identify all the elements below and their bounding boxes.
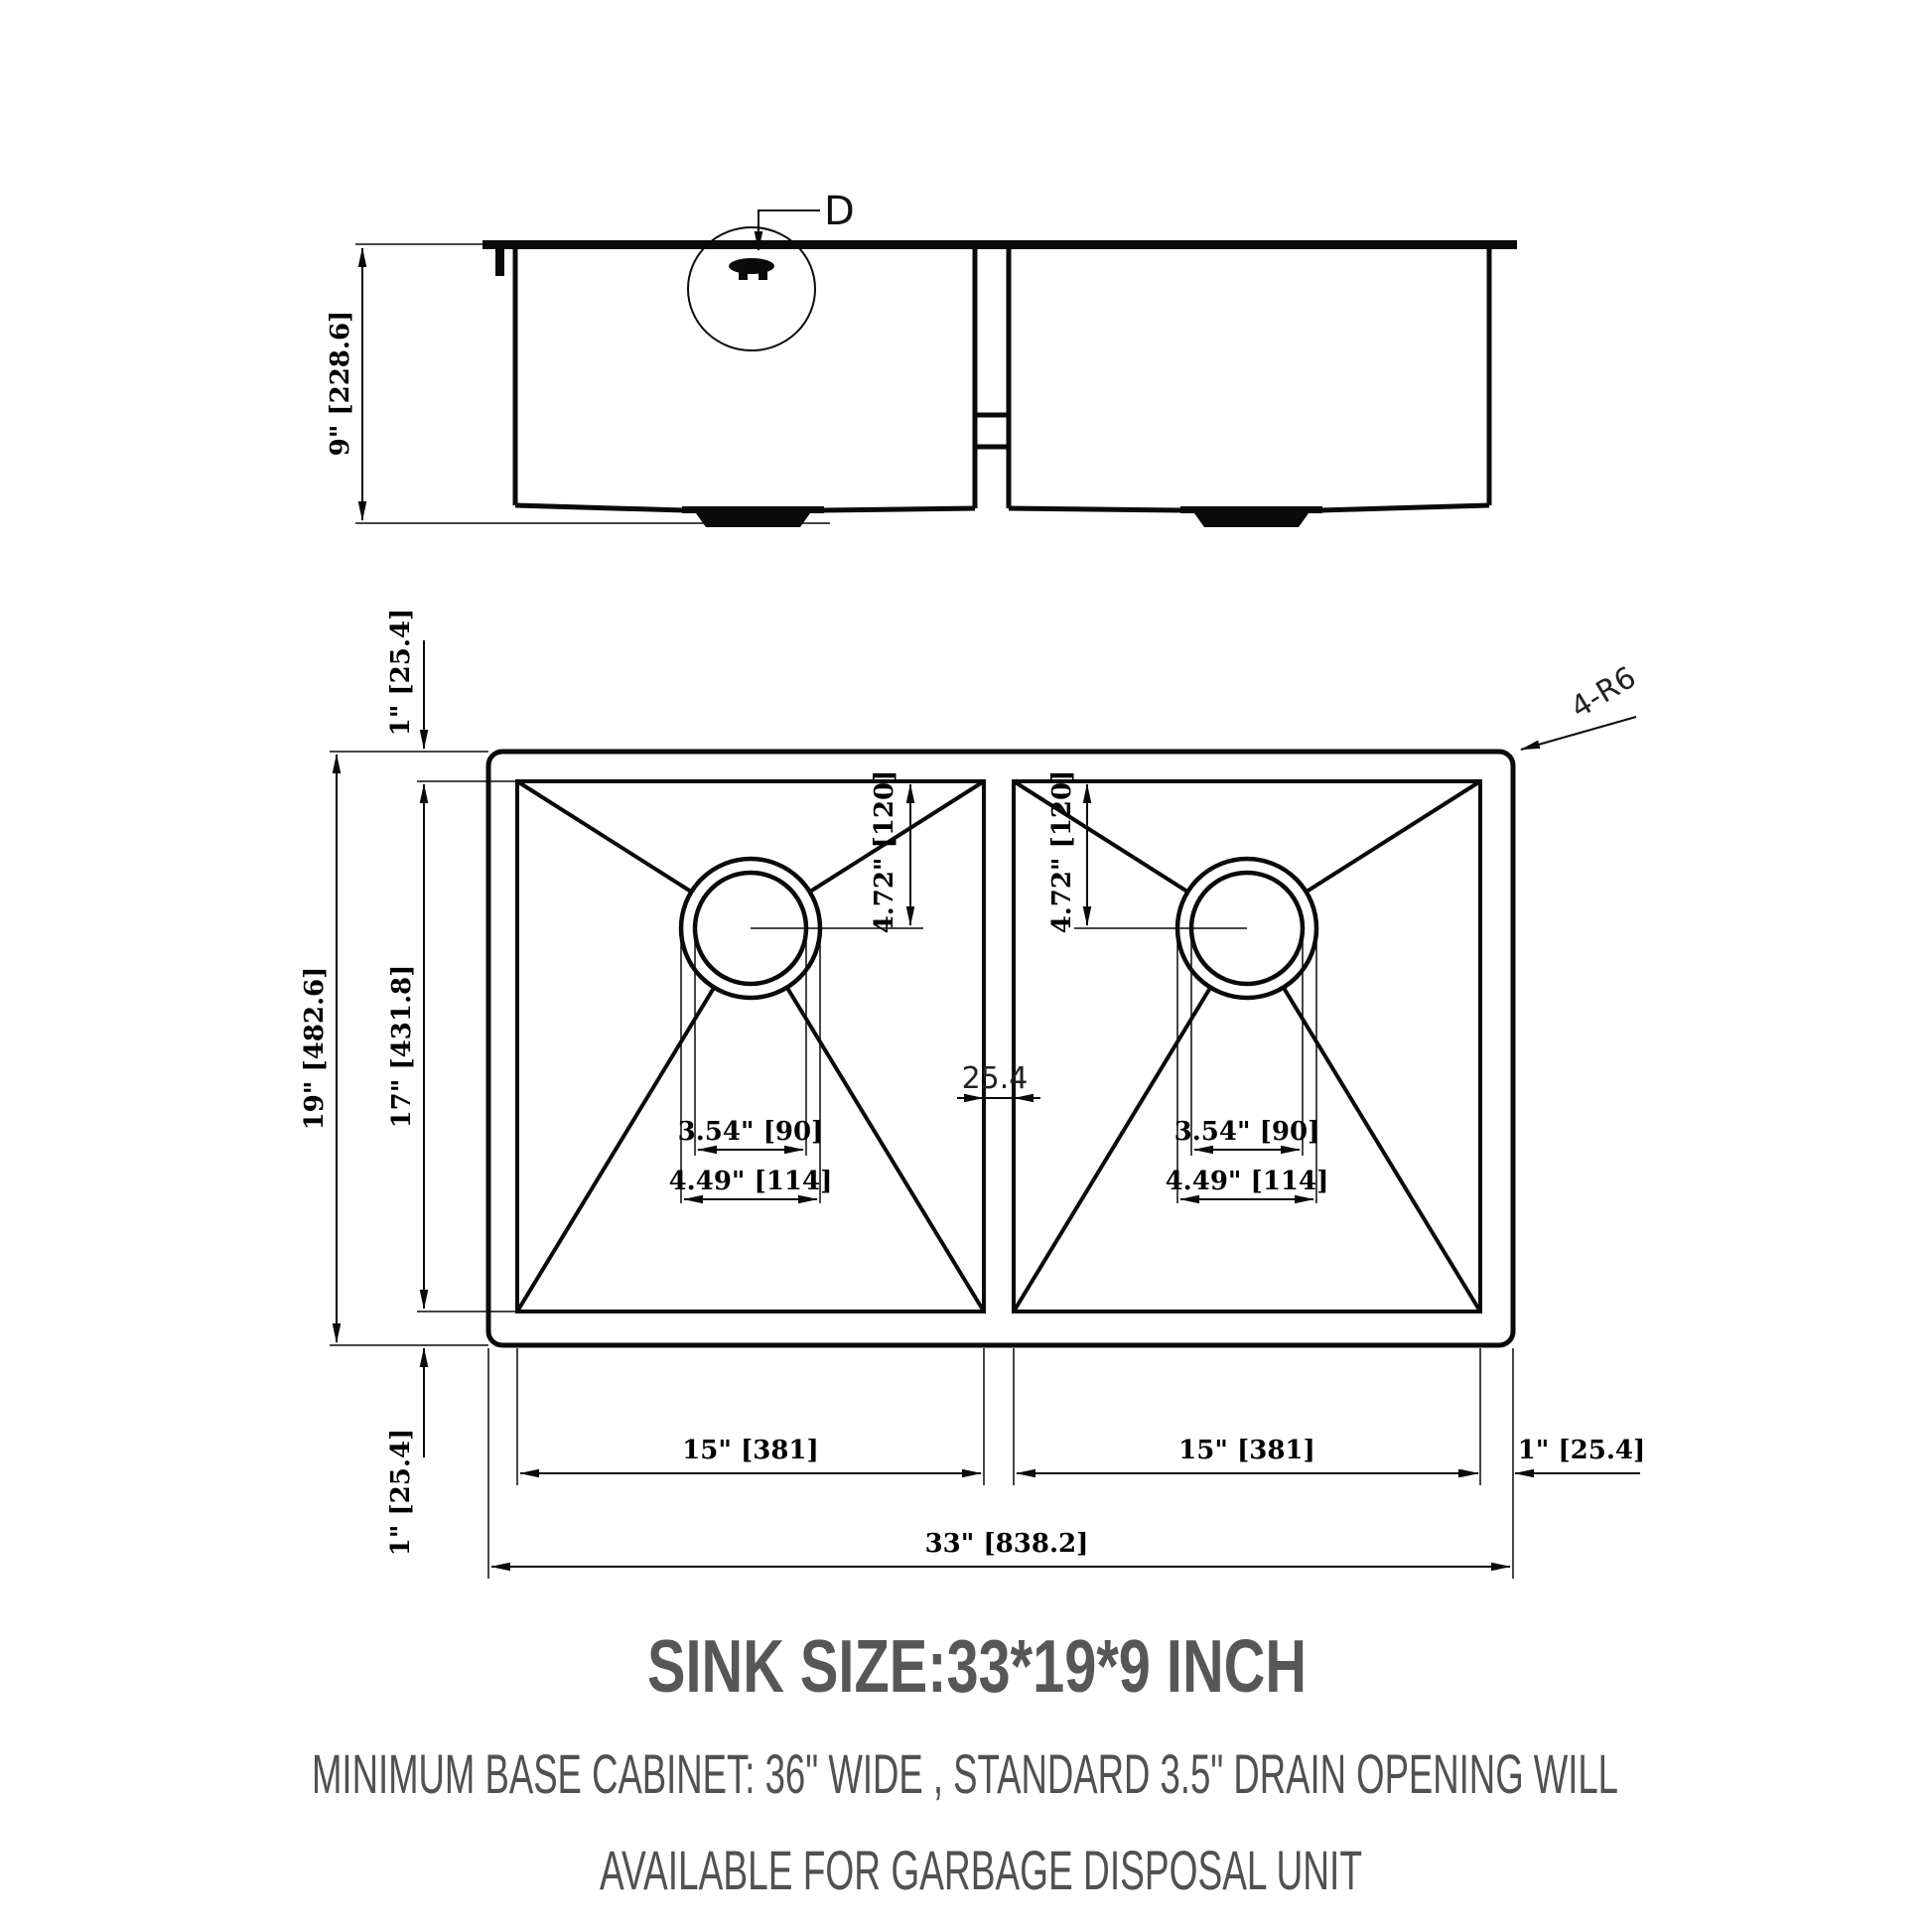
note-line-2: AVAILABLE FOR GARBAGE DISPOSAL UNIT [600, 1839, 1362, 1901]
sink-spec-sheet: D 9" [228.6] [0, 0, 1932, 1932]
rim-bottom-dim: 1" [25.4] [386, 1429, 416, 1557]
right-bowl-width-dim: 15" [381] [1178, 1436, 1315, 1465]
mounting-clip [495, 249, 504, 276]
faucet-icon [729, 258, 774, 280]
side-bowl-walls [515, 249, 1489, 510]
rim-top-dim: 1" [25.4] [386, 609, 416, 737]
plan-outer-rim [488, 752, 1513, 1345]
right-drain-inner-dim: 3.54" [90] [1174, 1117, 1320, 1147]
left-drain-fitting [682, 506, 824, 527]
corner-radius-callout: 4-R6 [1565, 660, 1642, 726]
plan-extension-lines [330, 752, 1513, 1579]
divider-width-label: 25.4 [962, 1061, 1029, 1096]
right-drain-offset-dim: 4.72" [120] [1047, 770, 1077, 934]
right-drain-outer-dim: 4.49" [114] [1166, 1167, 1329, 1196]
sink-rim-section [483, 240, 1517, 249]
left-bowl-width-dim: 15" [381] [682, 1436, 819, 1465]
side-height-dim: 9" [228.6] [326, 311, 355, 457]
outer-depth-dim: 19" [482.6] [300, 967, 330, 1131]
left-drain-outer-dim: 4.49" [114] [669, 1167, 833, 1196]
page-title: SINK SIZE:33*19*9 INCH [647, 1624, 1307, 1708]
rim-right-dim: 1" [25.4] [1518, 1436, 1646, 1465]
sink-technical-drawing: D 9" [228.6] [0, 0, 1932, 1932]
right-drain-fitting [1180, 506, 1322, 527]
left-drain-inner-dim: 3.54" [90] [678, 1117, 824, 1147]
bowl-depth-dim: 17" [431.8] [387, 965, 417, 1129]
left-drain-offset-dim: 4.72" [120] [870, 770, 899, 934]
overall-width-dim: 33" [838.2] [925, 1529, 1089, 1559]
note-line-1: MINIMUM BASE CABINET: 36" WIDE , STANDAR… [312, 1742, 1618, 1805]
plan-view-drawing: 1" [25.4] 19" [482.6] 17" [431.8] 1" [25… [300, 609, 1645, 1579]
side-view-drawing: D 9" [228.6] [326, 189, 1517, 527]
detail-label: D [824, 189, 855, 234]
footer-text: SINK SIZE:33*19*9 INCH MINIMUM BASE CABI… [312, 1624, 1618, 1901]
side-height-dimension [355, 244, 830, 523]
plan-dimension-lines [337, 640, 1640, 1567]
